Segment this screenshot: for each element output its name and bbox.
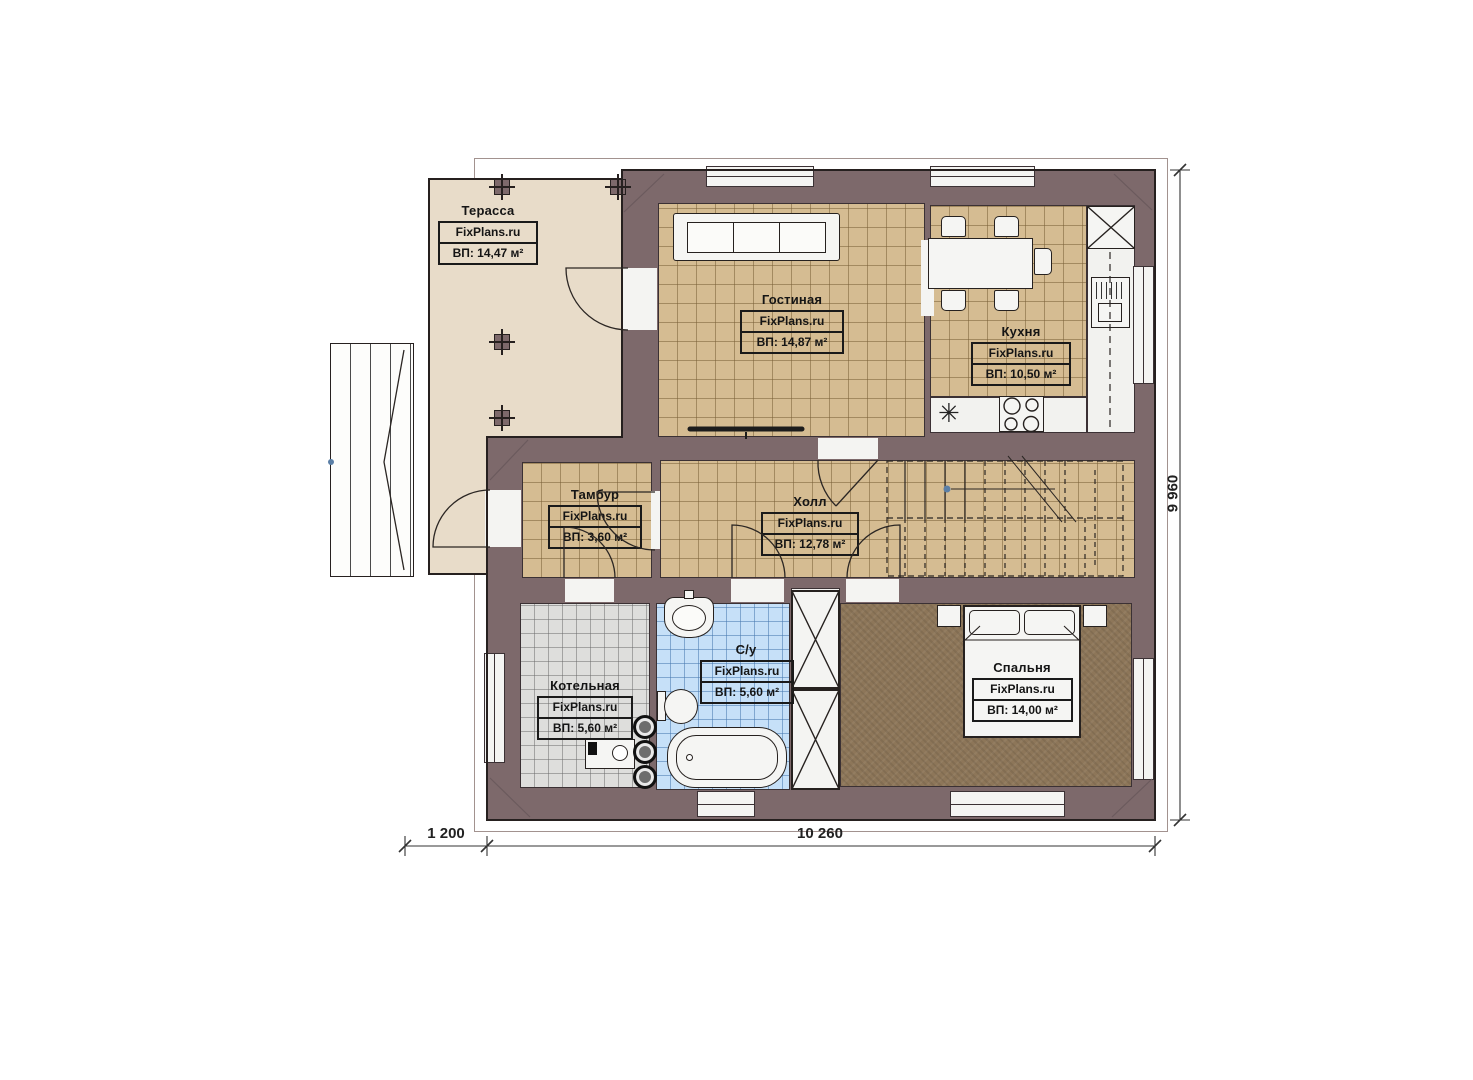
room-label-kitchen: Кухня FixPlans.ru ВП: 10,50 м²: [968, 324, 1074, 386]
room-name: Холл: [760, 494, 860, 509]
room-area: ВП: 14,47 м²: [440, 244, 536, 263]
tambour-hall-door-opening: [651, 491, 660, 549]
room-name: Тамбур: [545, 487, 645, 502]
room-brand: FixPlans.ru: [742, 312, 842, 333]
room-label-tambour: Тамбур FixPlans.ru ВП: 3,60 м²: [545, 487, 645, 549]
fridge-compartment: [1098, 303, 1122, 322]
fridge-grill: [1096, 282, 1125, 299]
room-brand: FixPlans.ru: [440, 223, 536, 244]
room-area: ВП: 3,60 м²: [550, 528, 640, 547]
dining-chair: [941, 290, 966, 311]
toilet-bowl: [664, 689, 698, 724]
stove: [999, 396, 1044, 432]
window-kitchen-top: [930, 166, 1035, 187]
room-name: Котельная: [537, 678, 633, 693]
room-info-box: FixPlans.ru ВП: 14,87 м²: [740, 310, 844, 354]
dimension-bottom-main: 10 260: [770, 825, 870, 842]
bedroom-door-opening: [846, 579, 899, 602]
dining-chair: [994, 290, 1019, 311]
room-brand: FixPlans.ru: [763, 514, 857, 535]
window-bedroom-bottom: [950, 791, 1065, 817]
terrace-column: [494, 334, 510, 350]
room-area: ВП: 5,60 м²: [702, 683, 792, 702]
pillow: [969, 610, 1020, 635]
room-area: ВП: 14,00 м²: [974, 701, 1071, 720]
window-bathroom-bottom: [697, 791, 755, 817]
room-info-box: FixPlans.ru ВП: 14,00 м²: [972, 678, 1073, 722]
room-name: Гостиная: [733, 292, 851, 307]
room-info-box: FixPlans.ru ВП: 5,60 м²: [537, 696, 633, 740]
terrace-column: [494, 410, 510, 426]
nightstand: [1083, 605, 1107, 627]
room-brand: FixPlans.ru: [550, 507, 640, 528]
tall-cabinet: [1087, 206, 1135, 249]
room-name: С/у: [700, 642, 792, 657]
hall-living-door-opening: [818, 438, 878, 459]
room-brand: FixPlans.ru: [702, 662, 792, 683]
bathroom-sink-bowl: [672, 605, 706, 631]
dining-chair: [994, 216, 1019, 237]
room-info-box: FixPlans.ru ВП: 5,60 м²: [700, 660, 794, 704]
sofa-cushions: [687, 222, 826, 253]
exterior-stairs: [330, 343, 414, 577]
room-label-boiler: Котельная FixPlans.ru ВП: 5,60 м²: [537, 678, 633, 740]
room-name: Терасса: [432, 203, 544, 218]
window-living-top: [706, 166, 814, 187]
entrance-door-opening: [485, 490, 521, 547]
nightstand: [937, 605, 961, 627]
dining-chair: [1034, 248, 1052, 275]
closet-box-top: [791, 590, 840, 689]
room-brand: FixPlans.ru: [974, 680, 1071, 701]
kitchen-sink-icon: ✳: [938, 400, 960, 426]
room-label-terrace: Терасса FixPlans.ru ВП: 14,47 м²: [432, 203, 544, 265]
faucet: [684, 590, 694, 599]
room-area: ВП: 10,50 м²: [973, 365, 1069, 384]
window-boiler-left: [484, 653, 505, 763]
room-label-bedroom: Спальня FixPlans.ru ВП: 14,00 м²: [972, 660, 1072, 722]
closet-box-bottom: [791, 689, 840, 790]
room-info-box: FixPlans.ru ВП: 12,78 м²: [761, 512, 859, 556]
hall-floor: [660, 460, 1135, 578]
dimension-bottom-left: 1 200: [406, 825, 486, 842]
room-info-box: FixPlans.ru ВП: 3,60 м²: [548, 505, 642, 549]
room-info-box: FixPlans.ru ВП: 10,50 м²: [971, 342, 1071, 386]
boiler-door-opening: [565, 579, 614, 602]
floor-plan: ✳ Терасса FixPlans.ru ВП: 14,47 м² Гости…: [0, 0, 1473, 1080]
terrace-column: [610, 179, 626, 195]
dimension-right-side: 9 960: [1165, 459, 1182, 529]
pillow: [1024, 610, 1075, 635]
boiler-manifold: [633, 740, 657, 764]
room-area: ВП: 12,78 м²: [763, 535, 857, 554]
dining-table: [928, 238, 1033, 289]
room-name: Кухня: [968, 324, 1074, 339]
bathtub-drain: [686, 754, 693, 761]
room-brand: FixPlans.ru: [539, 698, 631, 719]
terrace-column: [494, 179, 510, 195]
washing-machine-door: [612, 745, 628, 761]
room-label-living: Гостиная FixPlans.ru ВП: 14,87 м²: [733, 292, 851, 354]
room-brand: FixPlans.ru: [973, 344, 1069, 365]
dining-chair: [941, 216, 966, 237]
room-name: Спальня: [972, 660, 1072, 675]
room-label-bathroom: С/у FixPlans.ru ВП: 5,60 м²: [700, 642, 792, 704]
window-kitchen-right: [1133, 266, 1154, 384]
room-area: ВП: 14,87 м²: [742, 333, 842, 352]
washer-panel: [588, 742, 597, 755]
boiler-manifold: [633, 715, 657, 739]
room-area: ВП: 5,60 м²: [539, 719, 631, 738]
room-info-box: FixPlans.ru ВП: 14,47 м²: [438, 221, 538, 265]
terrace-living-door-opening: [622, 268, 657, 330]
bathroom-door-opening: [731, 579, 784, 602]
window-bedroom-right: [1133, 658, 1154, 780]
room-label-hall: Холл FixPlans.ru ВП: 12,78 м²: [760, 494, 860, 556]
boiler-manifold: [633, 765, 657, 789]
